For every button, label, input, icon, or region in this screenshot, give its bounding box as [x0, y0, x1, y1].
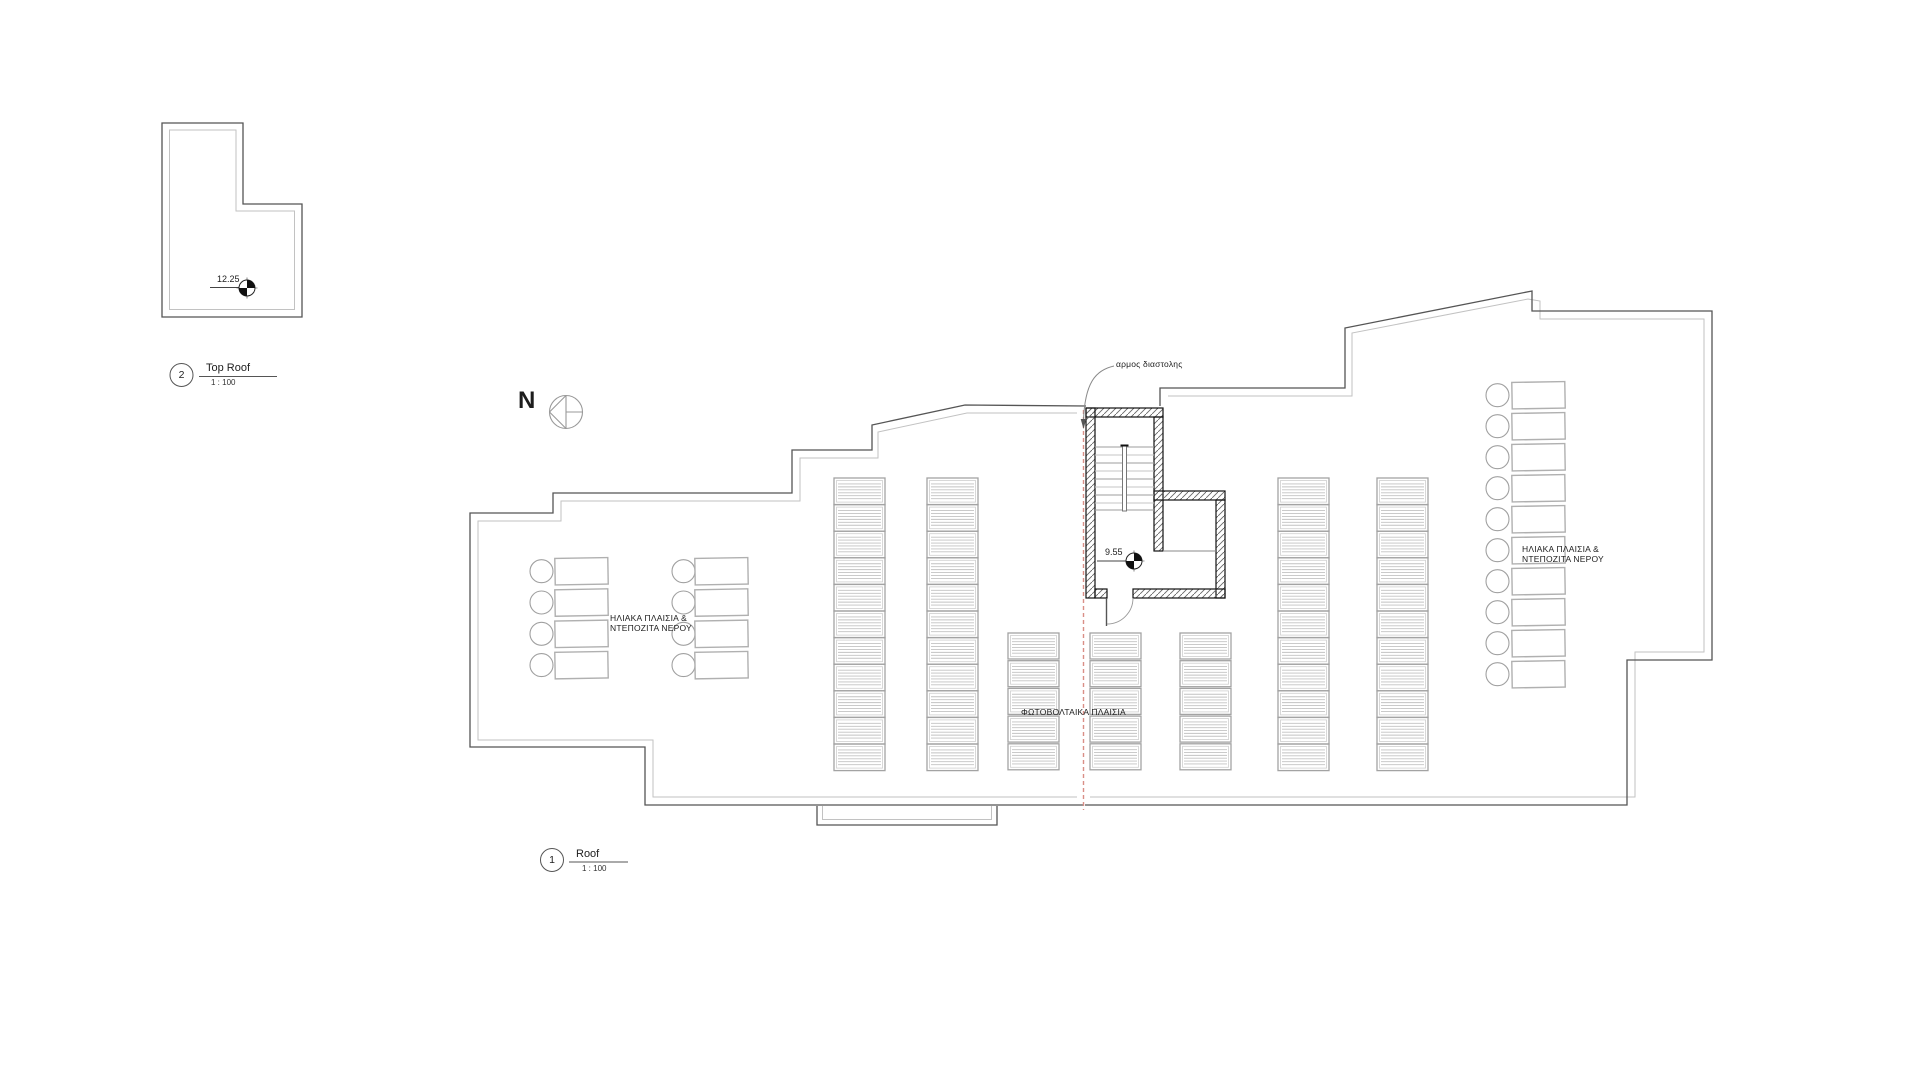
- stair-door: [1107, 598, 1134, 626]
- photovoltaic-label: ΦΩΤΟΒΟΛΤΑΙΚΑ ΠΛΑΙΣΙΑ: [1021, 707, 1126, 717]
- solar-panels-water-tanks-right: [1486, 382, 1565, 688]
- solar-label-left-line2: ΝΤΕΠΟΖΙΤΑ ΝΕΡΟΥ: [610, 624, 692, 634]
- expansion-joint-leader: [1081, 366, 1114, 429]
- photovoltaic-panel-strips: [834, 478, 1428, 771]
- top-roof-outline: [162, 123, 302, 317]
- spot-elevation-symbol-top-roof: [237, 278, 258, 299]
- spot-elevation-value-top-roof: 12.25: [217, 274, 240, 284]
- north-letter: N: [518, 387, 535, 415]
- solar-label-right: ΗΛΙΑΚΑ ΠΛΑΙΣΙΑ & ΝΤΕΠΟΖΙΤΑ ΝΕΡΟΥ: [1522, 545, 1604, 564]
- view-title-top-roof: Top Roof: [206, 362, 250, 374]
- view-number-roof: 1: [540, 854, 564, 866]
- view-number-top-roof: 2: [170, 369, 194, 381]
- lower-eave: [817, 806, 997, 825]
- roof-outline-left: [470, 405, 1086, 805]
- expansion-joint-label: αρμος διαστολης: [1116, 359, 1183, 369]
- architectural-roof-plan-sheet: N 12.25 9.55 2 Top Roof 1 : 100 1 Roof 1…: [0, 0, 1920, 1080]
- north-arrow-icon: [550, 396, 583, 429]
- solar-label-right-line2: ΝΤΕΠΟΖΙΤΑ ΝΕΡΟΥ: [1522, 555, 1604, 565]
- view-title-roof: Roof: [576, 848, 599, 860]
- view-scale-top-roof: 1 : 100: [211, 378, 235, 387]
- stair-treads: [1095, 445, 1154, 511]
- solar-label-left: ΗΛΙΑΚΑ ΠΛΑΙΣΙΑ & ΝΤΕΠΟΖΙΤΑ ΝΕΡΟΥ: [610, 614, 692, 633]
- drawing-linework: [0, 0, 1920, 1080]
- spot-elevation-symbol-roof: [1124, 551, 1145, 572]
- spot-elevation-value-roof: 9.55: [1105, 547, 1123, 557]
- view-title-marks: [170, 364, 628, 872]
- view-scale-roof: 1 : 100: [582, 864, 606, 873]
